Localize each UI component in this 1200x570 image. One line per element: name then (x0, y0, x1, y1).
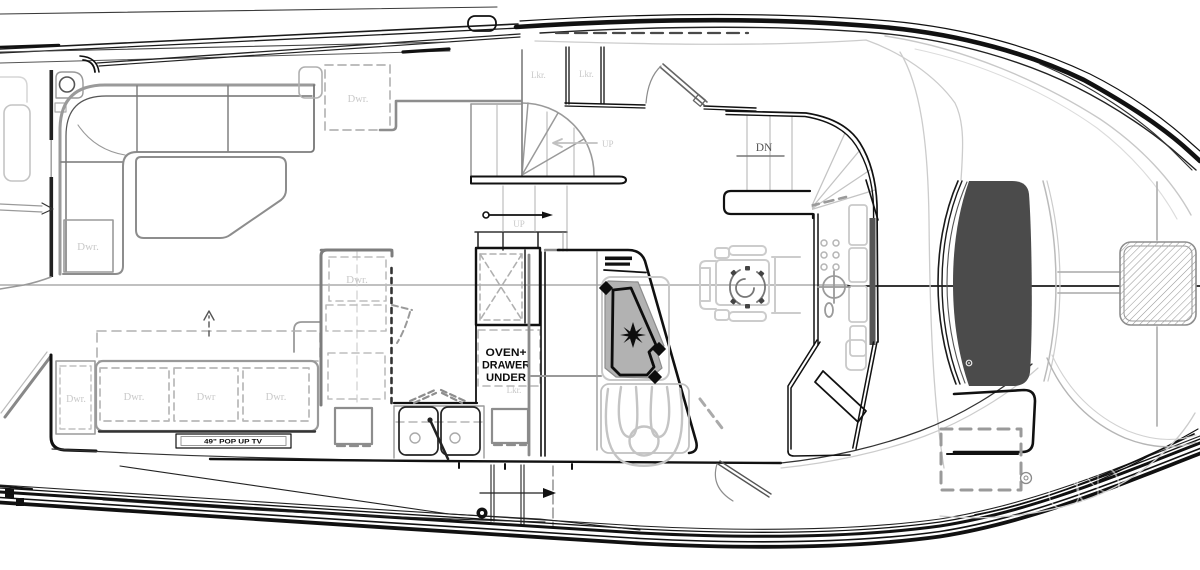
svg-text:UP: UP (602, 139, 614, 149)
svg-text:Dwr.: Dwr. (124, 392, 145, 403)
svg-text:UP: UP (513, 219, 525, 229)
svg-text:Dwr.: Dwr. (266, 392, 287, 403)
svg-text:49" POP UP TV: 49" POP UP TV (204, 440, 262, 446)
svg-text:Lkr.: Lkr. (507, 385, 522, 395)
svg-text:UNDER: UNDER (486, 372, 526, 384)
svg-text:Dwr.: Dwr. (348, 94, 369, 105)
svg-text:Lkr.: Lkr. (579, 69, 594, 79)
svg-text:Dwr.: Dwr. (66, 394, 86, 405)
svg-text:Lkr.: Lkr. (531, 70, 546, 80)
svg-text:DN: DN (756, 142, 773, 154)
svg-text:Dwr.: Dwr. (346, 274, 368, 286)
svg-text:DRAWER: DRAWER (482, 360, 530, 372)
svg-text:Dwr.: Dwr. (77, 241, 99, 253)
svg-text:Dwr: Dwr (197, 392, 216, 403)
svg-text:OVEN+: OVEN+ (486, 347, 527, 359)
